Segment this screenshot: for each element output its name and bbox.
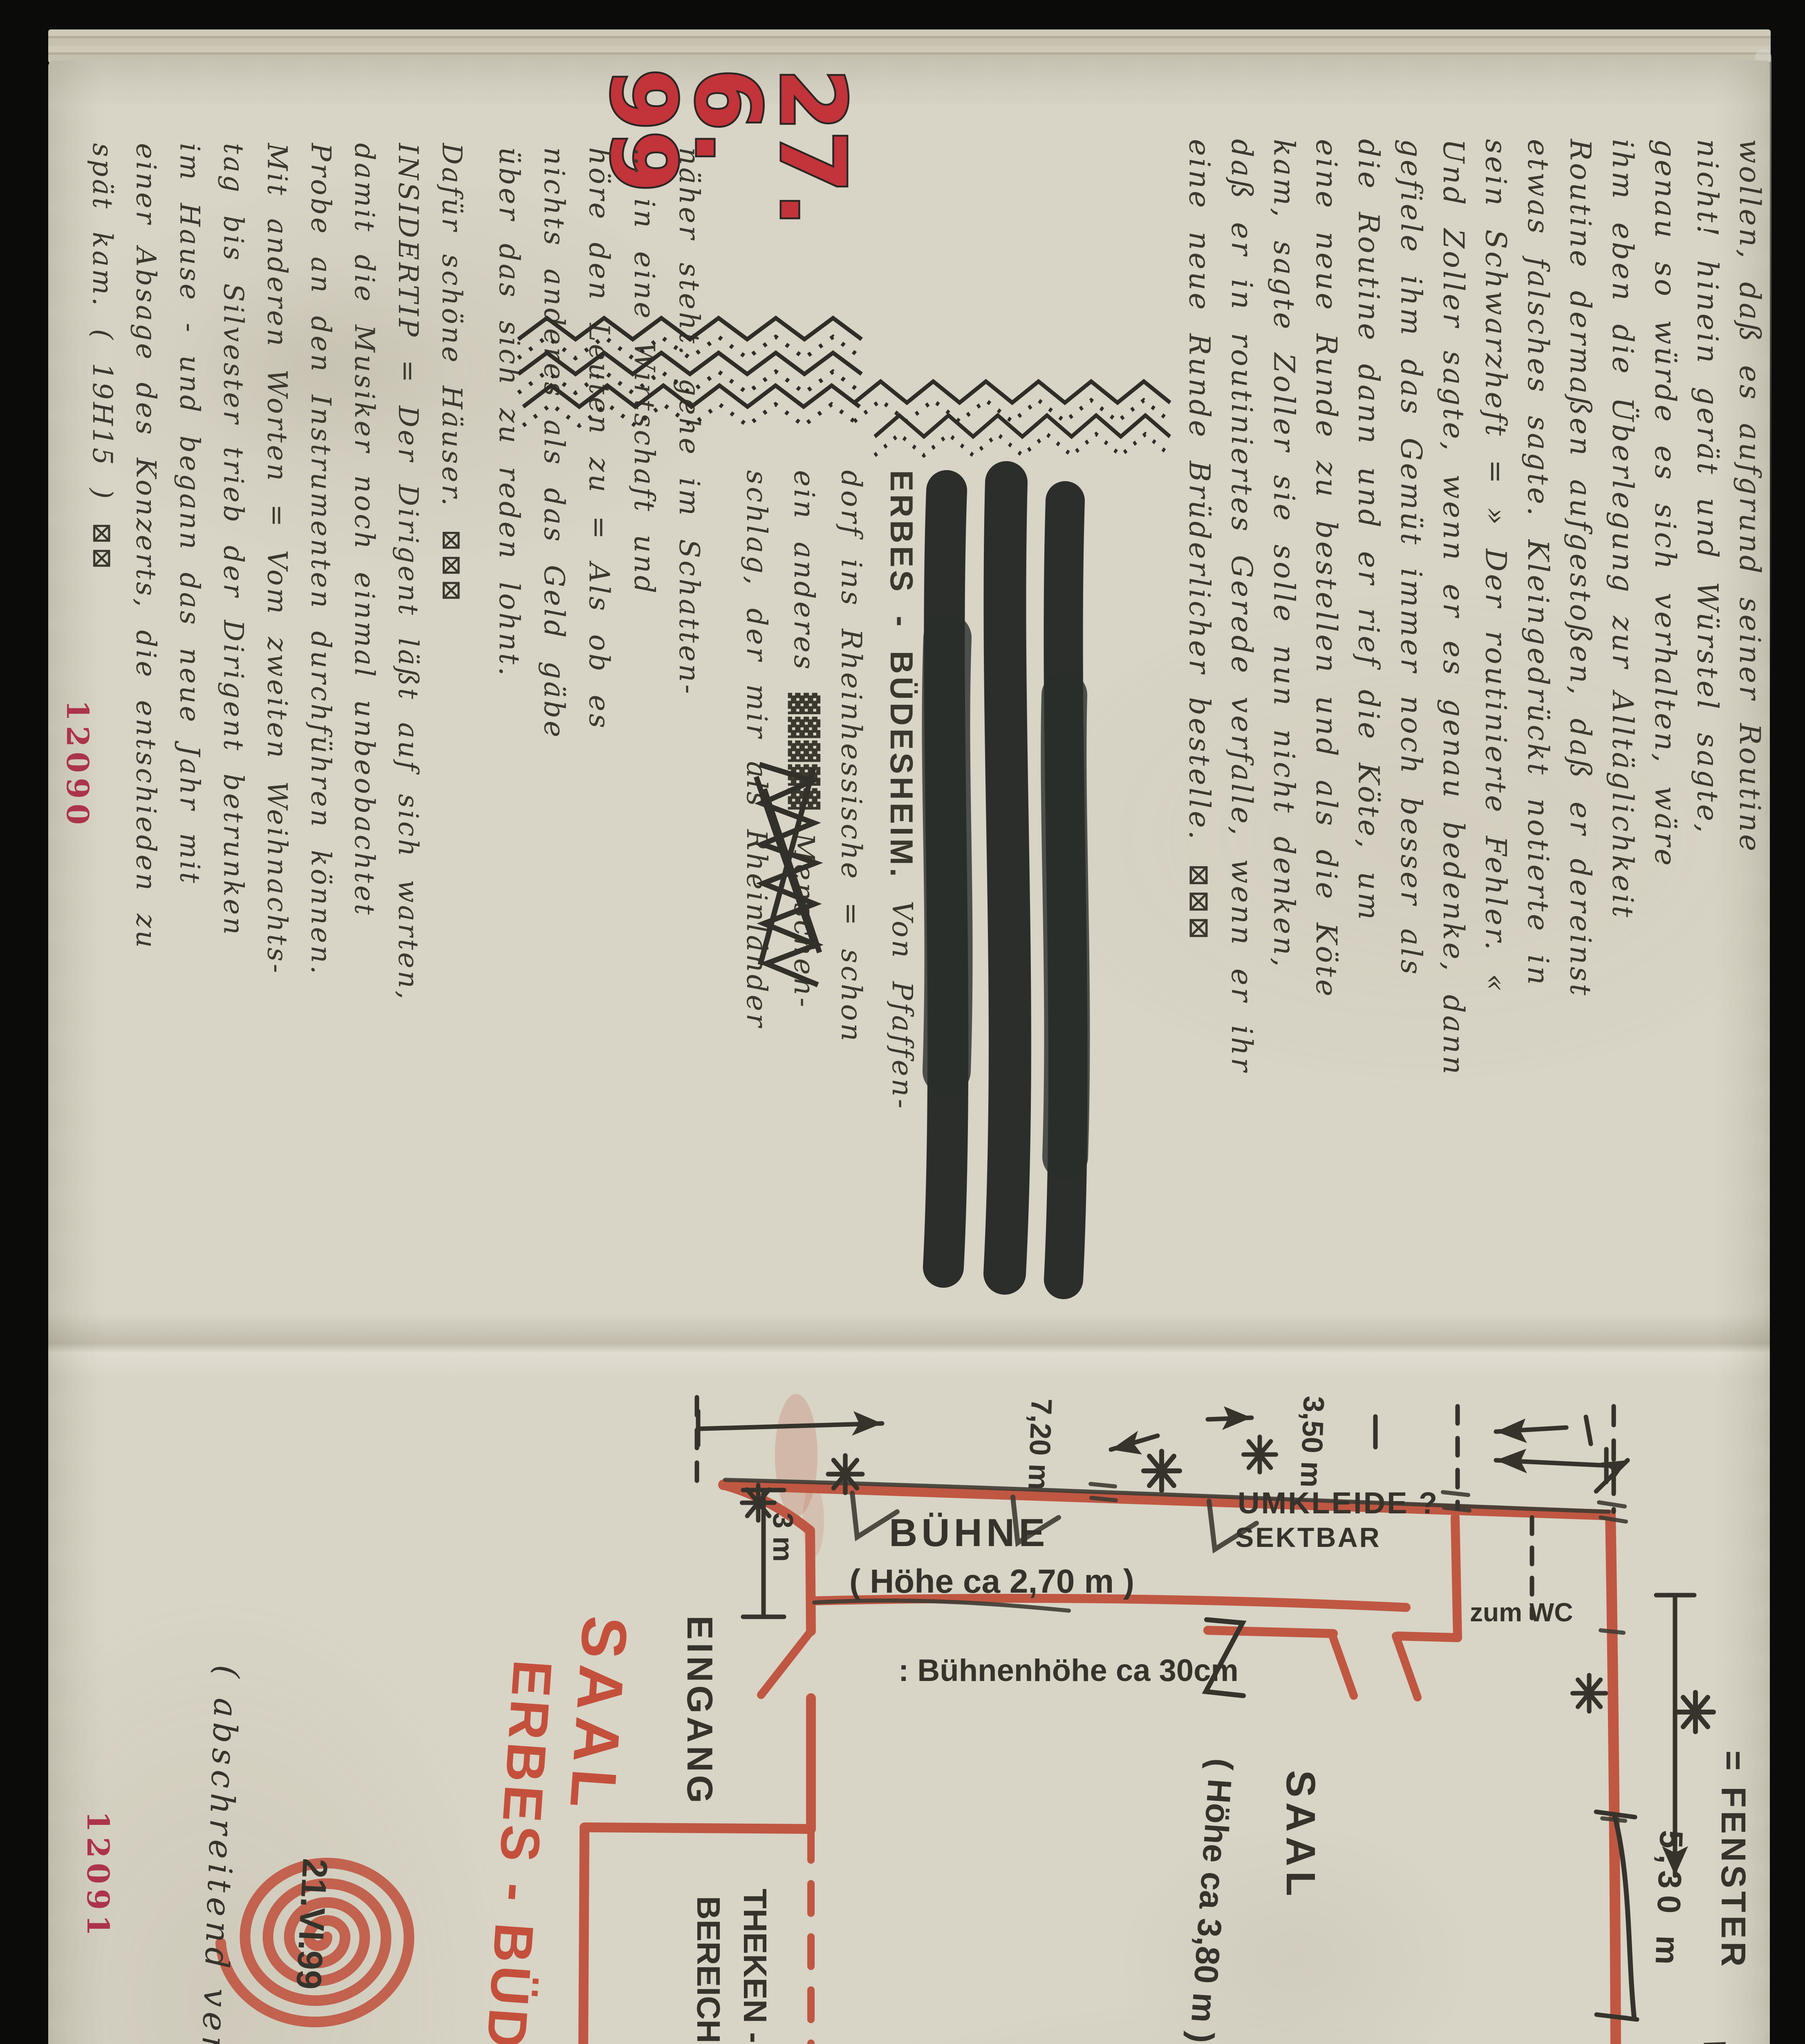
journal-line: Dafür schöne Häuser. ⊠⊠⊠ [430, 143, 473, 1353]
journal-line: näher steht. gehe im Schatten- [666, 147, 711, 1325]
journal-line: höre den Leuten zu = Als ob es [576, 147, 621, 1325]
paper-stain [1111, 1818, 1479, 2044]
date-day: 27. [770, 69, 854, 338]
journal-line: daß er in routiniertes Gerede verfalle, … [1220, 139, 1263, 1325]
location-heading-caps: ERBES - BÜDESHEIM. [884, 470, 920, 880]
journal-line: nichts anderes als das Geld gäbe [531, 147, 576, 1325]
journal-text-middle-block: näher steht. gehe im Schatten- … in eine… [477, 147, 711, 1325]
journal-line: schlag, der mir als Rheinländer [733, 470, 780, 1288]
journal-text-last-block: Dafür schöne Häuser. ⊠⊠⊠ INSIDERTIP = De… [76, 143, 473, 1353]
journal-line: nicht! hinein gerät und Würstel sagte, [1686, 139, 1729, 1325]
journal-line: Routine dermaßen aufgestoßen, daß er der… [1559, 139, 1601, 1325]
location-heading-rest: Von Pfaffen- [886, 880, 918, 1111]
journal-line: über das sich zu reden lohnt. [486, 147, 531, 1325]
journal-line: Mit anderen Worten = Vom zweiten Weihnac… [255, 143, 298, 1353]
journal-heading-block: ERBES - BÜDESHEIM. Von Pfaffen- dorf ins… [732, 470, 929, 1288]
journal-line: tag bis Silvester trieb der Dirigent bet… [211, 143, 255, 1353]
journal-line: etwas falsches sagte. Kleingedrückt noti… [1516, 139, 1559, 1325]
journal-line: im Hause - und begann das neue Jahr mit [168, 143, 211, 1353]
journal-text-first-block: wollen, daß es aufgrund seiner Routine n… [1177, 139, 1771, 1325]
journal-line: dorf ins Rheinhessische = schon [827, 470, 875, 1288]
journal-line: damit die Musiker noch einmal unbeobacht… [342, 143, 386, 1353]
journal-line: die Routine dann und er rief die Köte, u… [1347, 139, 1390, 1325]
archive-stamp: 12091 [80, 1811, 115, 1941]
journal-line: genau so würde es sich verhalten, wäre [1644, 139, 1686, 1325]
journal-line: Und Zoller sagte, wenn er es genau beden… [1432, 139, 1474, 1325]
journal-line: Probe an den Instrumenten durchführen kö… [298, 143, 342, 1353]
journal-line: gefiele ihm das Gemüt immer noch besser … [1390, 139, 1432, 1325]
journal-line: wollen, daß es aufgrund seiner Routine [1728, 139, 1771, 1325]
journal-line: kam, sagte Zoller sie solle nun nicht de… [1263, 139, 1305, 1325]
book-page-stack-edge [48, 29, 1771, 63]
scanned-journal-page: 27. 6. 99 wollen, daß es aufgrund seiner… [0, 0, 1805, 2044]
journal-line: INSIDERTIP = Der Dirigent läßt auf sich … [386, 143, 430, 1353]
journal-line-with-scribble: ein anderes ▓▓▓▓▓ Menschen- [780, 470, 827, 1288]
location-heading: ERBES - BÜDESHEIM. Von Pfaffen- [874, 470, 929, 1288]
journal-line: einer Absage des Konzerts, die entschied… [124, 143, 168, 1353]
journal-line: ihm eben die Überlegung zur Alltäglichke… [1601, 139, 1644, 1325]
journal-line: eine neue Runde zu bestellen und als die… [1305, 139, 1347, 1325]
archive-stamp: 12090 [60, 700, 95, 829]
journal-line: eine neue Runde Brüderlicher bestelle. ⊠… [1178, 139, 1221, 1325]
journal-line: sein Schwarzheft = » Der routinierte Feh… [1474, 139, 1517, 1325]
journal-line: … in eine Wirtschaft und [621, 147, 666, 1325]
